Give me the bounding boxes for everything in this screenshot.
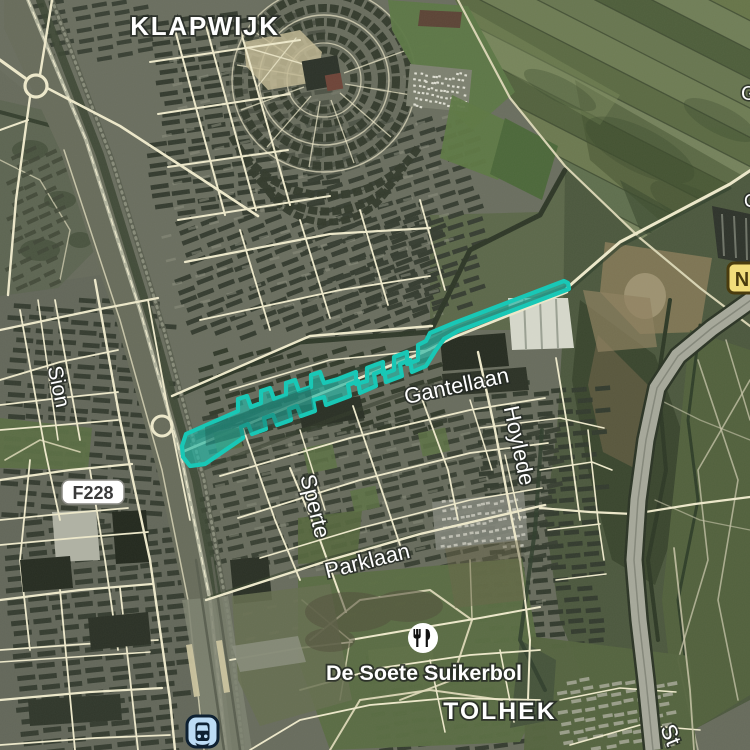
svg-text:De Soete Suikerbol: De Soete Suikerbol bbox=[326, 661, 522, 685]
svg-text:F228: F228 bbox=[72, 483, 113, 503]
svg-text:KLAPWIJK: KLAPWIJK bbox=[130, 11, 279, 41]
svg-text:C: C bbox=[744, 191, 750, 211]
svg-text:N: N bbox=[735, 269, 749, 291]
svg-text:G: G bbox=[741, 83, 750, 105]
svg-text:TOLHEK: TOLHEK bbox=[443, 698, 556, 725]
